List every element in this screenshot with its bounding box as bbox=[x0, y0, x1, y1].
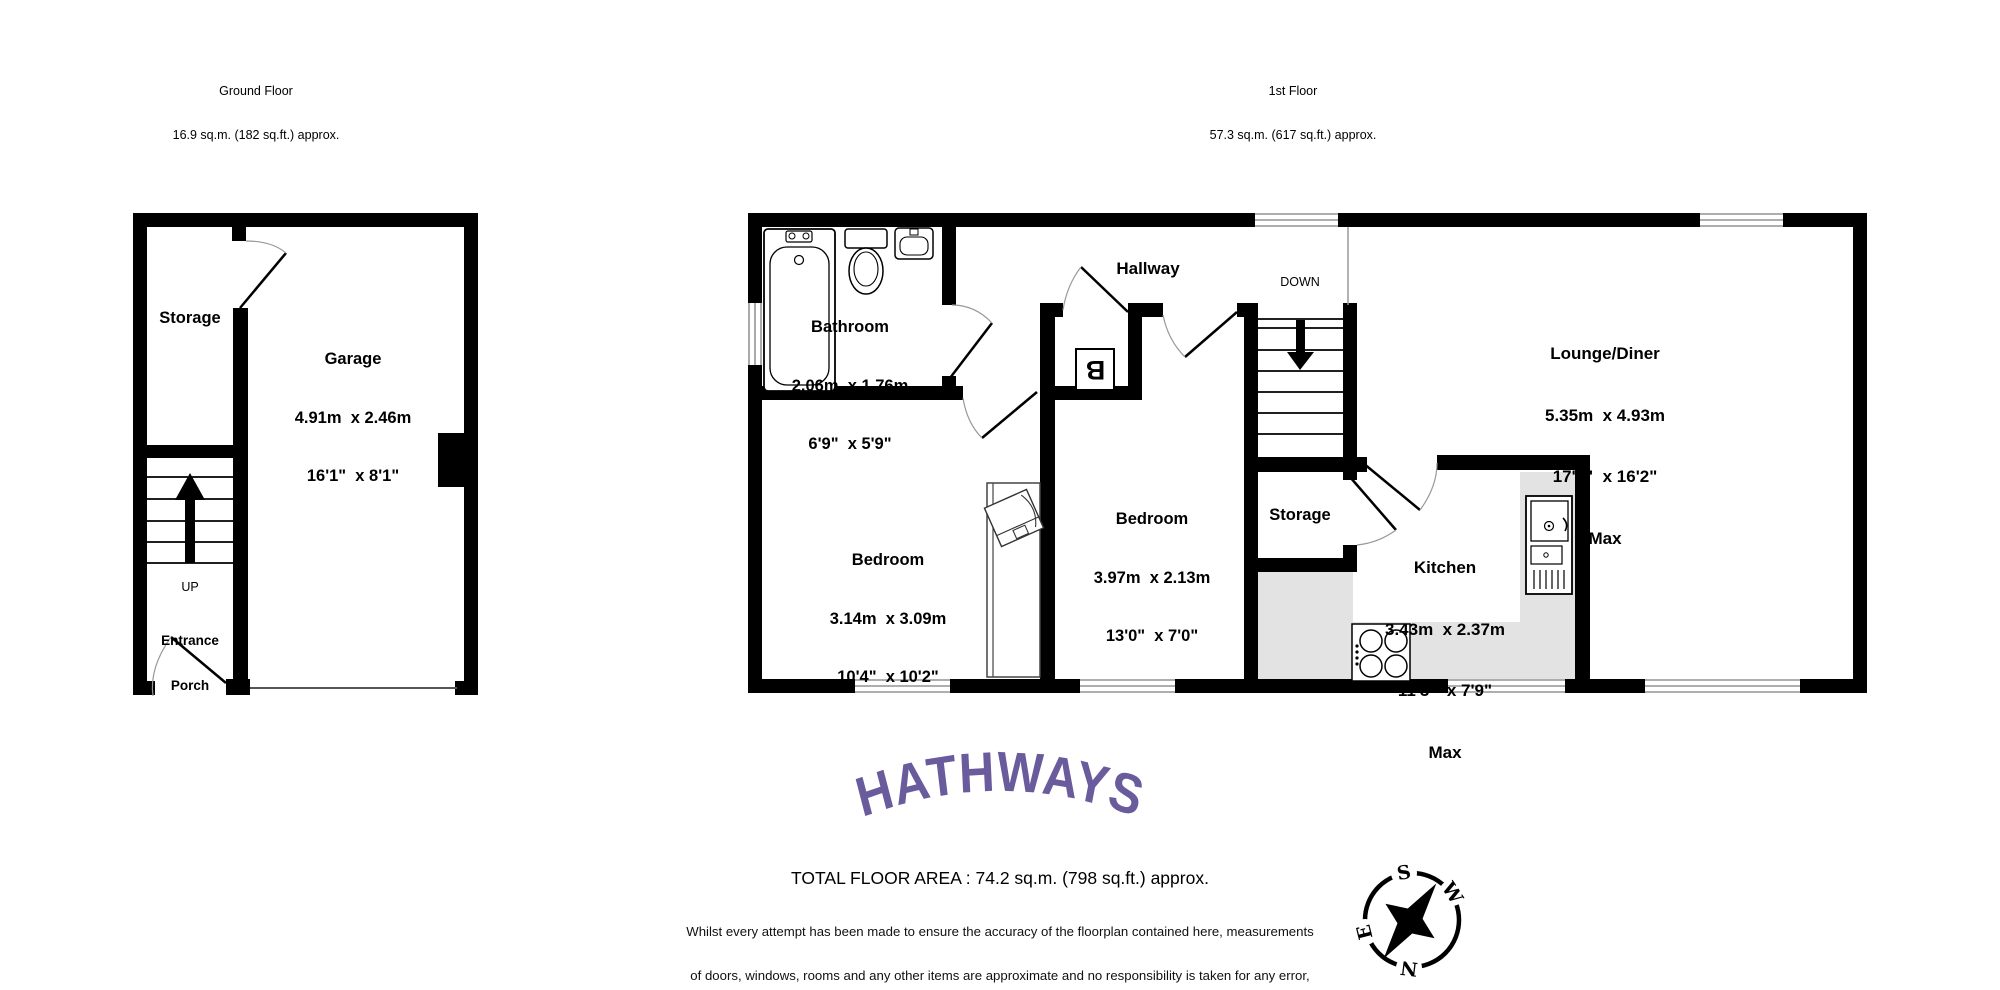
first-floor-title: 1st Floor 57.3 sq.m. (617 sq.ft.) approx… bbox=[1210, 55, 1377, 171]
room-label-lounge-diner: Lounge/Diner 5.35m x 4.93m 17'7" x 16'2"… bbox=[1545, 303, 1665, 590]
ground-floor-title: Ground Floor 16.9 sq.m. (182 sq.ft.) app… bbox=[173, 55, 340, 171]
first-floor-name: 1st Floor bbox=[1210, 84, 1377, 99]
kitchen-dims-imperial: 11'3" x 7'9" bbox=[1385, 681, 1505, 702]
room-label-storage-gf: Storage bbox=[159, 309, 220, 329]
bedroom1-name: Bedroom bbox=[830, 551, 947, 571]
basin-icon bbox=[895, 228, 933, 259]
compass-south: S bbox=[1389, 858, 1419, 888]
room-label-bedroom-2: Bedroom 3.97m x 2.13m 13'0" x 7'0" bbox=[1094, 471, 1211, 686]
room-label-bathroom: Bathroom 2.06m x 1.76m 6'9" x 5'9" bbox=[792, 279, 909, 494]
window-stairs-top bbox=[1255, 213, 1338, 227]
bedroom1-dims-metric: 3.14m x 3.09m bbox=[830, 610, 947, 630]
bathroom-name: Bathroom bbox=[792, 318, 909, 338]
stairs-up-label: UP bbox=[181, 581, 198, 594]
disclaimer: Whilst every attempt has been made to en… bbox=[683, 896, 1318, 990]
room-label-kitchen: Kitchen 3.43m x 2.37m 11'3" x 7'9" Max bbox=[1385, 517, 1505, 804]
garage-wall-pillar bbox=[438, 433, 464, 487]
window-lounge-top bbox=[1700, 213, 1783, 227]
floorplan-page: HATHWAYS Ground Floor 16.9 sq.m. (182 sq… bbox=[0, 0, 2000, 990]
bedroom1-door bbox=[963, 392, 1037, 438]
room-label-bedroom-1: Bedroom 3.14m x 3.09m 10'4" x 10'2" bbox=[830, 512, 947, 727]
boiler-label: B bbox=[1077, 350, 1114, 389]
ground-floor-name: Ground Floor bbox=[173, 84, 340, 99]
bedroom2-dims-metric: 3.97m x 2.13m bbox=[1094, 569, 1211, 589]
disclaimer-line-1: Whilst every attempt has been made to en… bbox=[683, 925, 1318, 940]
bathroom-dims-metric: 2.06m x 1.76m bbox=[792, 377, 909, 397]
ground-floor-area: 16.9 sq.m. (182 sq.ft.) approx. bbox=[173, 128, 340, 143]
kitchen-max: Max bbox=[1385, 743, 1505, 764]
room-label-storage-ff: Storage bbox=[1269, 506, 1330, 526]
storage-door bbox=[240, 241, 286, 308]
porch-line1: Entrance bbox=[161, 633, 219, 648]
porch-line2: Porch bbox=[161, 678, 219, 693]
disclaimer-line-2: of doors, windows, rooms and any other i… bbox=[683, 969, 1318, 984]
svg-text:HATHWAYS: HATHWAYS bbox=[850, 740, 1151, 829]
lounge-dims-metric: 5.35m x 4.93m bbox=[1545, 406, 1665, 427]
up-arrow-icon bbox=[175, 473, 205, 563]
bathroom-dims-imperial: 6'9" x 5'9" bbox=[792, 435, 909, 455]
brand-logo: HATHWAYS bbox=[845, 740, 1155, 829]
garage-dims-imperial: 16'1" x 8'1" bbox=[295, 467, 412, 487]
window-bathroom-left bbox=[748, 303, 762, 365]
lounge-max: Max bbox=[1545, 529, 1665, 550]
window-lounge-bottom bbox=[1645, 679, 1800, 693]
lounge-dims-imperial: 17'7" x 16'2" bbox=[1545, 467, 1665, 488]
brand-text: HATHWAYS bbox=[850, 740, 1151, 829]
bedroom2-dims-imperial: 13'0" x 7'0" bbox=[1094, 627, 1211, 647]
garage-dims-metric: 4.91m x 2.46m bbox=[295, 409, 412, 429]
room-label-hallway: Hallway bbox=[1116, 259, 1179, 280]
total-floor-area: TOTAL FLOOR AREA : 74.2 sq.m. (798 sq.ft… bbox=[791, 868, 1209, 888]
garage-name: Garage bbox=[295, 350, 412, 370]
bedroom2-name: Bedroom bbox=[1094, 510, 1211, 530]
stairs-down-label: DOWN bbox=[1280, 276, 1320, 289]
room-label-garage: Garage 4.91m x 2.46m 16'1" x 8'1" bbox=[295, 311, 412, 526]
lounge-name: Lounge/Diner bbox=[1545, 344, 1665, 365]
first-floor-area: 57.3 sq.m. (617 sq.ft.) approx. bbox=[1210, 128, 1377, 143]
bedroom1-dims-imperial: 10'4" x 10'2" bbox=[830, 668, 947, 688]
compass-north: N bbox=[1395, 954, 1424, 983]
kitchen-dims-metric: 3.43m x 2.37m bbox=[1385, 620, 1505, 641]
bedroom2-door bbox=[1163, 312, 1237, 357]
room-label-entrance-porch: Entrance Porch bbox=[161, 603, 219, 723]
bathroom-door bbox=[950, 305, 992, 378]
kitchen-name: Kitchen bbox=[1385, 558, 1505, 579]
wardrobe bbox=[984, 483, 1043, 677]
